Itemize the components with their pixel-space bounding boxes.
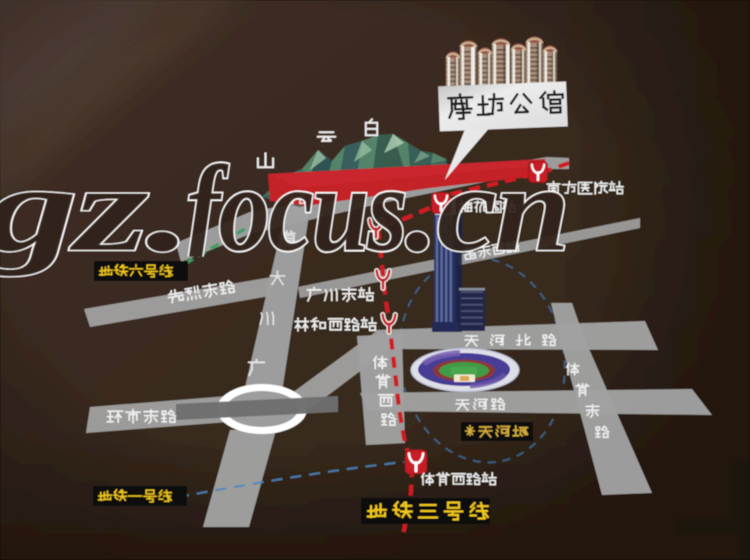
svg-text:gz.: gz. — [0, 140, 190, 277]
svg-text:.cn: .cn — [405, 141, 568, 278]
